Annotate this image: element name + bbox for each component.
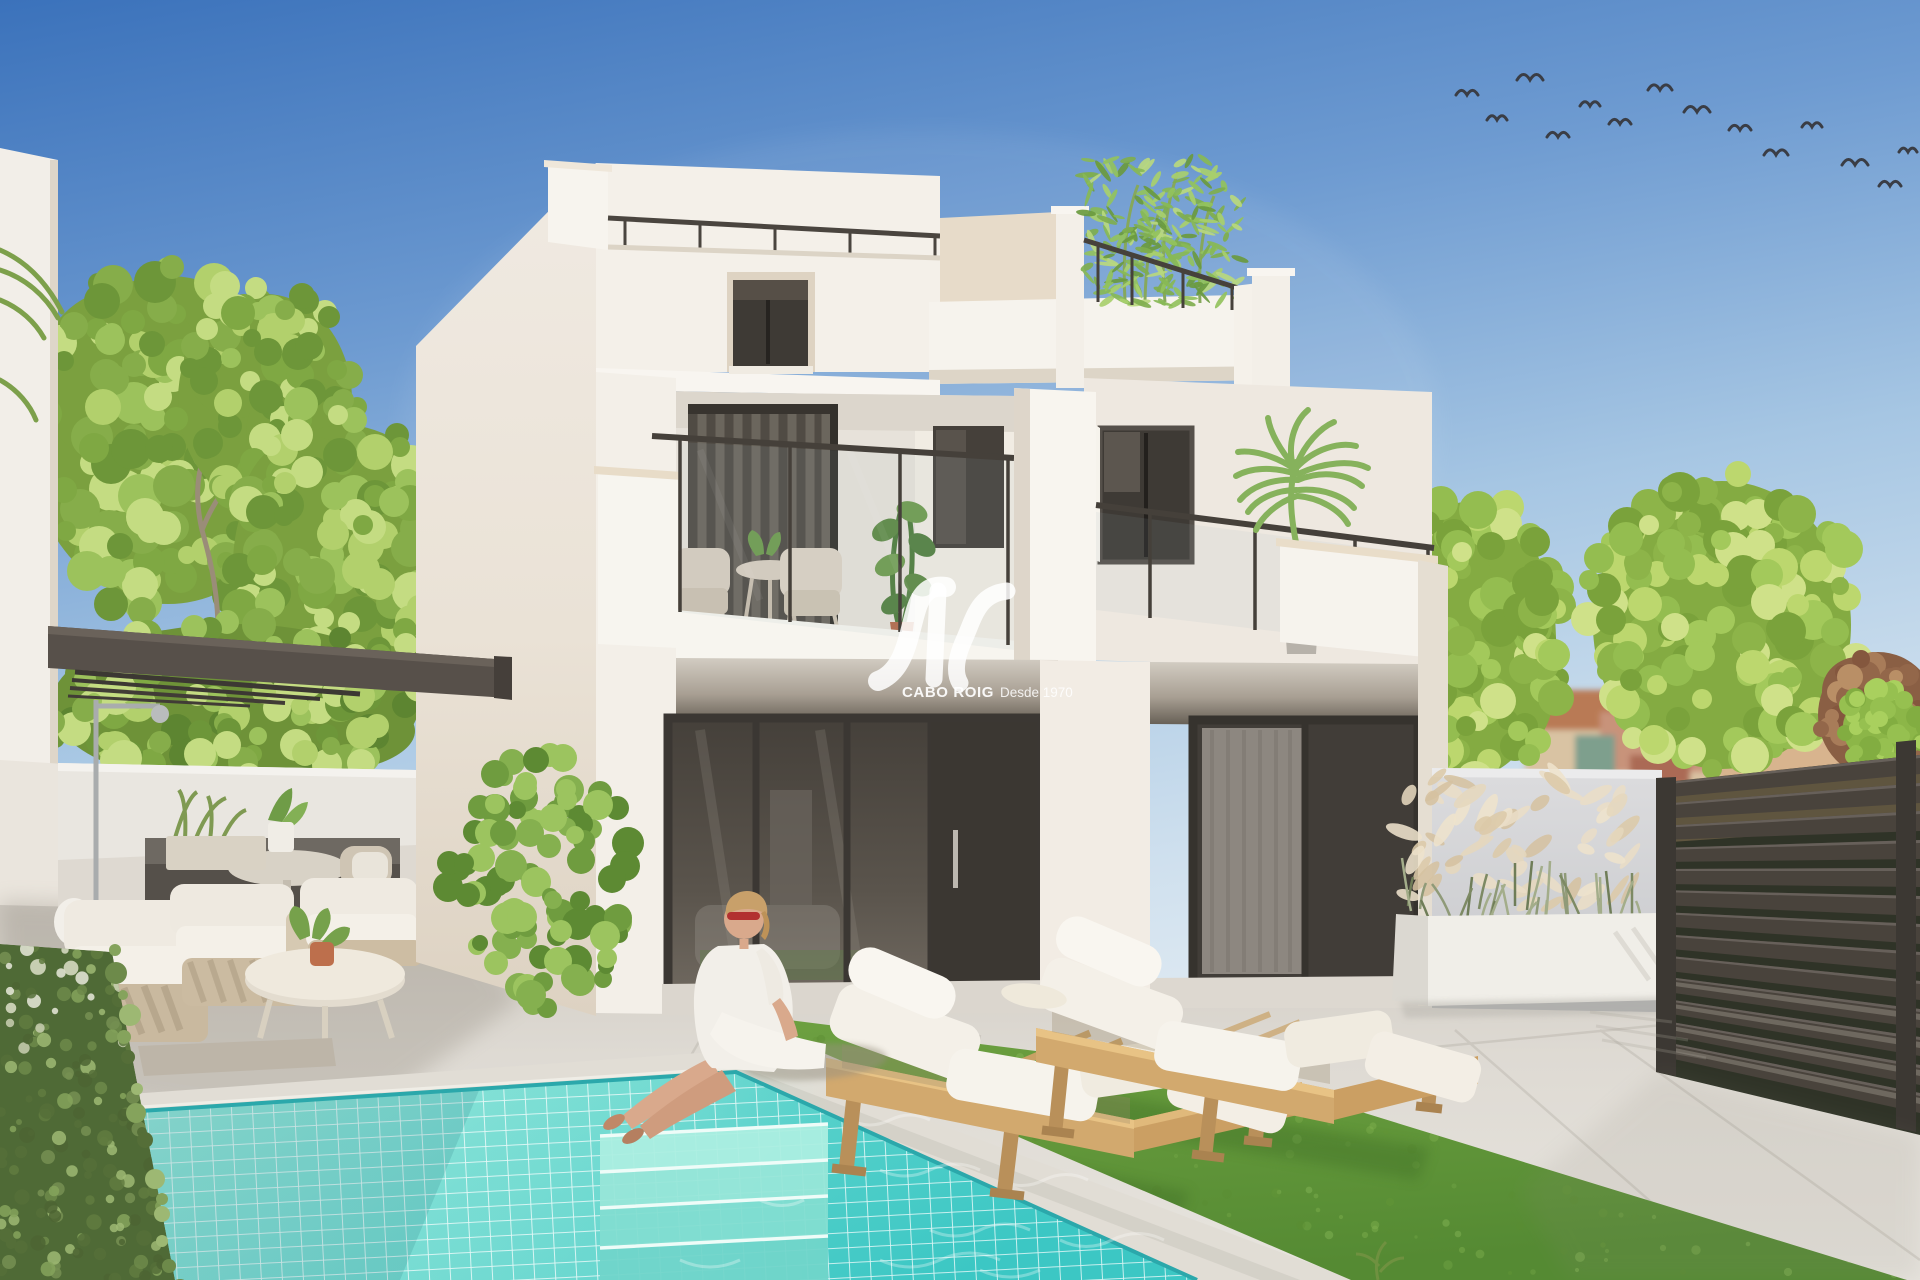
svg-text:CABO ROIG: CABO ROIG <box>902 684 994 701</box>
svg-text:Desde 1970: Desde 1970 <box>1000 685 1073 700</box>
